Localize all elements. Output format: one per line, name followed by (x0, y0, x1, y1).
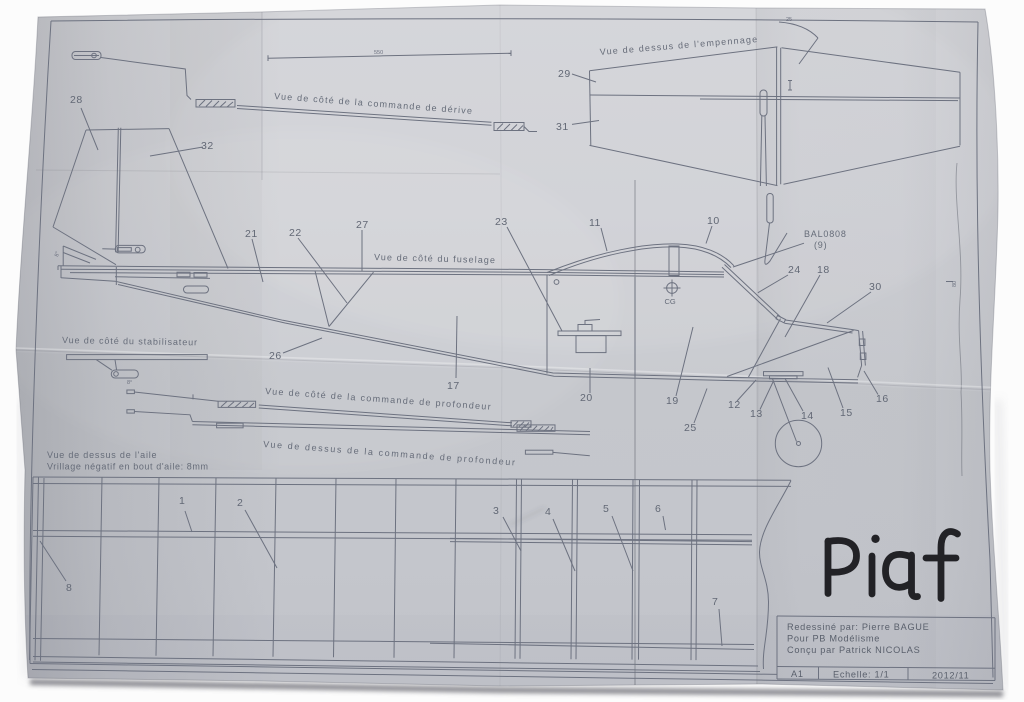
svg-text:80: 80 (952, 281, 958, 287)
svg-text:20: 20 (580, 392, 593, 404)
svg-text:3: 3 (493, 505, 499, 517)
svg-text:17: 17 (447, 380, 460, 392)
svg-text:25: 25 (684, 422, 697, 434)
svg-text:16: 16 (876, 393, 889, 405)
svg-text:Redessiné par: Pierre BAGUE: Redessiné par: Pierre BAGUE (787, 622, 929, 632)
svg-text:Conçu par Patrick NICOLAS: Conçu par Patrick NICOLAS (787, 645, 920, 655)
svg-text:2: 2 (237, 497, 243, 509)
svg-text:1: 1 (179, 495, 185, 507)
svg-text:29: 29 (558, 68, 571, 80)
svg-text:18: 18 (817, 264, 830, 276)
svg-text:21: 21 (245, 228, 258, 240)
svg-text:14: 14 (801, 410, 814, 422)
svg-text:Pour PB Modélisme: Pour PB Modélisme (787, 634, 880, 644)
svg-text:6: 6 (655, 503, 661, 515)
svg-text:4: 4 (545, 506, 551, 518)
svg-text:10: 10 (707, 215, 720, 227)
svg-text:2012/11: 2012/11 (932, 671, 969, 681)
svg-text:Echelle: 1/1: Echelle: 1/1 (833, 670, 889, 680)
svg-text:27: 27 (356, 219, 369, 231)
svg-text:Vue de dessus de l'aile: Vue de dessus de l'aile (47, 450, 157, 460)
svg-text:A1: A1 (791, 669, 804, 679)
svg-text:15: 15 (840, 407, 853, 419)
svg-text:5: 5 (603, 503, 609, 515)
svg-text:19: 19 (666, 395, 679, 407)
svg-text:31: 31 (556, 121, 569, 133)
svg-text:13: 13 (750, 408, 763, 420)
svg-text:22: 22 (289, 227, 302, 239)
svg-text:25: 25 (786, 17, 792, 23)
svg-text:28: 28 (70, 94, 83, 106)
svg-text:23: 23 (495, 216, 508, 228)
svg-text:Vrillage négatif en bout d'ail: Vrillage négatif en bout d'aile: 8mm (47, 462, 209, 472)
svg-text:32: 32 (201, 140, 214, 152)
svg-text:CG: CG (665, 297, 676, 306)
svg-text:(9): (9) (814, 240, 827, 250)
svg-text:26: 26 (269, 350, 282, 362)
svg-text:BAL0808: BAL0808 (804, 229, 847, 239)
svg-text:7: 7 (712, 596, 718, 608)
svg-text:30: 30 (869, 281, 882, 293)
svg-text:550: 550 (374, 50, 383, 56)
svg-text:24: 24 (788, 264, 801, 276)
svg-text:8: 8 (66, 582, 72, 594)
svg-text:11: 11 (589, 217, 601, 229)
svg-text:8°: 8° (127, 380, 132, 386)
svg-text:12: 12 (728, 399, 741, 411)
